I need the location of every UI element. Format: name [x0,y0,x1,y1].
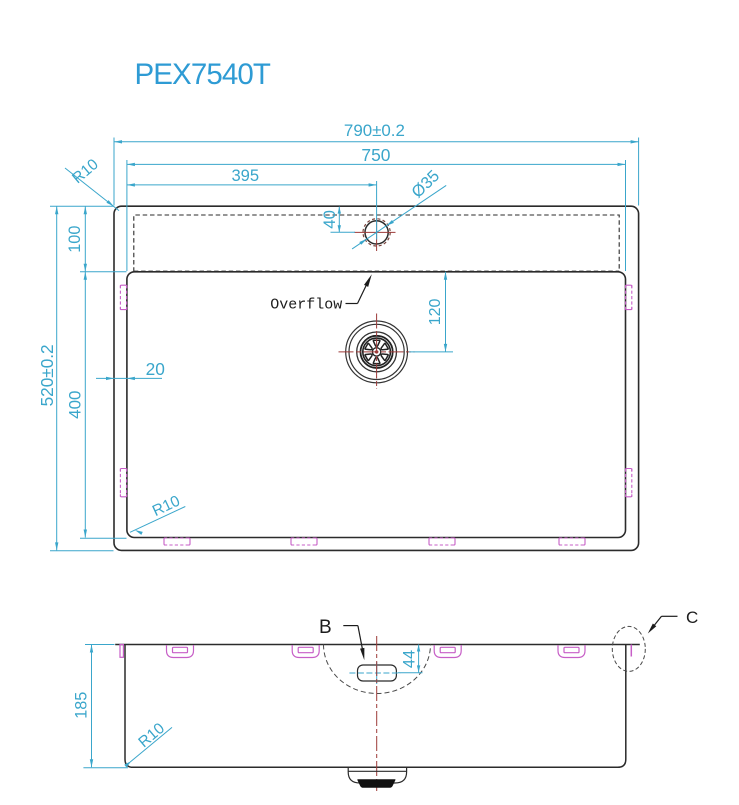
svg-text:790±0.2: 790±0.2 [344,121,405,140]
svg-text:40: 40 [320,210,339,229]
svg-text:B: B [319,617,332,638]
svg-text:PEX7540T: PEX7540T [135,58,271,91]
svg-text:20: 20 [146,359,165,379]
svg-text:120: 120 [427,298,444,325]
svg-text:520±0.2: 520±0.2 [37,344,57,406]
svg-text:395: 395 [231,166,259,185]
svg-text:44: 44 [401,650,419,668]
svg-text:Overflow: Overflow [270,296,342,313]
svg-text:100: 100 [66,226,84,253]
svg-text:400: 400 [66,391,85,419]
svg-text:C: C [686,608,698,627]
svg-text:750: 750 [361,145,390,165]
svg-text:185: 185 [72,692,90,719]
